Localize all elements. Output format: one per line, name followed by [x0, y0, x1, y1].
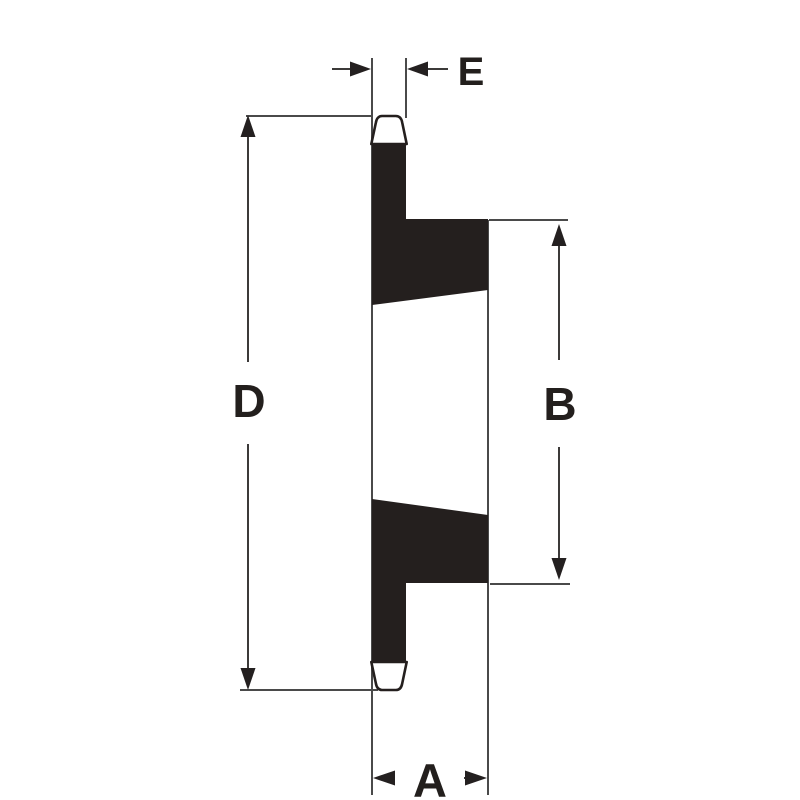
arrow-up-icon [552, 224, 567, 246]
part-silhouette [371, 116, 488, 690]
arrow-down-icon [241, 668, 256, 690]
drawing-canvas: E D B A [0, 0, 800, 800]
arrow-down-icon [552, 558, 567, 580]
arrow-right-icon [465, 771, 487, 786]
arrow-left-icon [407, 62, 428, 77]
dimension-label-a: A [413, 754, 447, 800]
dimension-b: B [543, 224, 576, 580]
dimension-label-b: B [543, 378, 576, 430]
dimension-label-d: D [232, 375, 265, 427]
arrow-up-icon [241, 115, 256, 137]
dimension-d: D [232, 115, 265, 690]
cross-section-diagram: E D B A [0, 0, 800, 800]
arrow-left-icon [373, 771, 395, 786]
dimension-e: E [332, 50, 484, 94]
dimension-label-e: E [458, 50, 485, 94]
part-lower-section [372, 499, 488, 664]
part-upper-section [372, 141, 488, 305]
tooth-profile-bottom [371, 662, 406, 690]
dimension-a: A [373, 754, 487, 800]
arrow-right-icon [350, 62, 371, 77]
tooth-profile-top [371, 116, 406, 144]
